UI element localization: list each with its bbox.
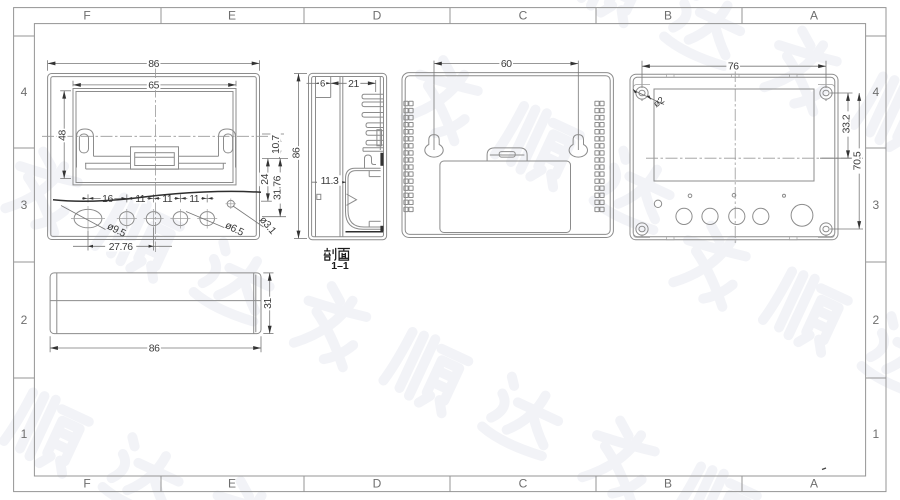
svg-text:48: 48 — [58, 130, 69, 141]
svg-text:B: B — [664, 8, 672, 22]
svg-text:86: 86 — [149, 344, 160, 355]
svg-text:24: 24 — [260, 173, 271, 184]
svg-text:21: 21 — [348, 79, 359, 90]
svg-text:6: 6 — [320, 79, 325, 90]
svg-text:3: 3 — [21, 198, 28, 212]
svg-text:F: F — [83, 8, 90, 22]
svg-text:1: 1 — [872, 427, 879, 441]
svg-text:10.7: 10.7 — [271, 135, 282, 154]
svg-text:70.5: 70.5 — [853, 151, 864, 170]
svg-text:4: 4 — [21, 85, 28, 99]
svg-text:B: B — [664, 477, 672, 491]
svg-text:11: 11 — [135, 194, 146, 205]
svg-text:1: 1 — [21, 427, 28, 441]
svg-text:A: A — [810, 477, 818, 491]
svg-text:2: 2 — [872, 313, 879, 327]
svg-text:3: 3 — [872, 198, 879, 212]
svg-text:33.2: 33.2 — [841, 114, 852, 133]
svg-text:D: D — [373, 8, 382, 22]
svg-text:1–1: 1–1 — [331, 260, 349, 272]
svg-text:E: E — [228, 8, 236, 22]
svg-text:16: 16 — [102, 194, 113, 205]
svg-text:65: 65 — [148, 80, 159, 91]
svg-text:D: D — [373, 477, 382, 491]
svg-text:4: 4 — [872, 85, 879, 99]
svg-text:C: C — [519, 477, 528, 491]
svg-text:2: 2 — [21, 313, 28, 327]
svg-text:E: E — [228, 477, 236, 491]
svg-text:11: 11 — [189, 194, 200, 205]
svg-text:A: A — [810, 8, 818, 22]
svg-text:C: C — [519, 8, 528, 22]
svg-text:27.76: 27.76 — [109, 242, 134, 253]
svg-text:86: 86 — [292, 147, 303, 158]
svg-text:76: 76 — [728, 62, 739, 73]
svg-text:86: 86 — [148, 59, 159, 70]
svg-text:60: 60 — [501, 59, 512, 70]
svg-text:31.76: 31.76 — [273, 175, 284, 200]
svg-text:F: F — [83, 477, 90, 491]
svg-text:31: 31 — [263, 298, 274, 309]
svg-text:11.3: 11.3 — [321, 176, 339, 187]
